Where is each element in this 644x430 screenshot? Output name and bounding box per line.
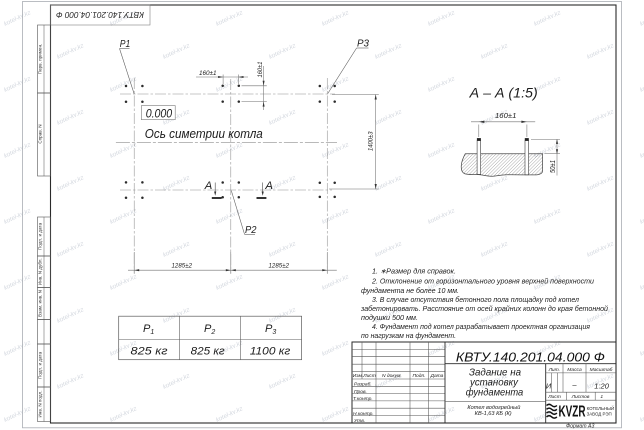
svg-text:КВТУ.140.201.04.000 Ф: КВТУ.140.201.04.000 Ф (55, 10, 144, 19)
svg-text:Лист: Лист (547, 394, 561, 400)
svg-text:забетонировать. Расстояние от: забетонировать. Расстояние от осей крайн… (360, 304, 608, 313)
svg-text:Пров.: Пров. (354, 389, 367, 395)
svg-text:КВ-1,63 КБ (К): КВ-1,63 КБ (К) (475, 411, 512, 417)
svg-text:ЗАВОД РЭП: ЗАВОД РЭП (587, 411, 612, 416)
svg-text:825 кг: 825 кг (191, 346, 226, 358)
svg-text:Формат А3: Формат А3 (566, 423, 594, 429)
svg-text:1: 1 (600, 394, 603, 400)
svg-text:1100 кг: 1100 кг (250, 346, 291, 358)
svg-text:1285±2: 1285±2 (172, 263, 193, 270)
svg-text:4. Фундамент под котел разраба: 4. Фундамент под котел разрабатывает про… (372, 322, 590, 331)
svg-text:фундамента: фундамента (466, 387, 524, 399)
svg-text:фундамента не более 10 мм.: фундамента не более 10 мм. (361, 286, 459, 295)
svg-text:А: А (264, 180, 273, 192)
svg-text:Подп.: Подп. (413, 373, 426, 379)
svg-text:Перв. примен.: Перв. примен. (38, 44, 43, 75)
svg-text:КВТУ.140.201.04.000 Ф: КВТУ.140.201.04.000 Ф (456, 350, 605, 365)
svg-text:Дата: Дата (430, 373, 444, 379)
svg-text:160±1: 160±1 (257, 61, 264, 77)
svg-text:160±1: 160±1 (495, 113, 517, 120)
svg-text:Лит.: Лит. (548, 367, 560, 373)
svg-text:Т.контр.: Т.контр. (353, 396, 373, 402)
svg-text:–: – (571, 381, 577, 390)
svg-text:Инв. N подл.: Инв. N подл. (38, 390, 43, 417)
svg-text:1285±2: 1285±2 (269, 263, 290, 270)
svg-text:825 кг: 825 кг (131, 346, 169, 358)
svg-text:Взам. инв. N: Взам. инв. N (38, 290, 43, 317)
svg-text:Ось симетрии котла: Ось симетрии котла (145, 126, 263, 141)
svg-text:N докум.: N докум. (382, 373, 402, 379)
svg-text:Н.контр.: Н.контр. (353, 411, 374, 417)
svg-text:3. В случае отсутствия бетонно: 3. В случае отсутствия бетонного пола пл… (372, 295, 579, 304)
svg-text:Масштаб: Масштаб (590, 367, 613, 373)
svg-text:160±1: 160±1 (199, 70, 217, 77)
svg-text:Р1: Р1 (120, 39, 131, 50)
svg-text:50±1: 50±1 (550, 160, 557, 173)
svg-text:Изм.Лист: Изм.Лист (353, 373, 376, 379)
svg-text:Утв.: Утв. (354, 418, 365, 424)
svg-text:Подп. и дата: Подп. и дата (38, 223, 43, 251)
svg-text:1400±3: 1400±3 (367, 131, 374, 151)
svg-text:подушки 500 мм.: подушки 500 мм. (361, 313, 418, 322)
svg-text:2. Отклонение от горизонтально: 2. Отклонение от горизонтального уровня … (371, 277, 594, 286)
svg-text:А – А (1:5): А – А (1:5) (469, 86, 538, 101)
svg-text:Листов: Листов (571, 394, 590, 400)
svg-text:0.000: 0.000 (146, 106, 173, 120)
svg-text:KVZR: KVZR (559, 404, 586, 421)
svg-text:КОТЕЛЬНЫЙ: КОТЕЛЬНЫЙ (587, 406, 615, 411)
svg-text:Разраб.: Разраб. (354, 382, 372, 388)
svg-text:Справ. N: Справ. N (38, 124, 43, 143)
svg-text:Подп. и дата: Подп. и дата (38, 352, 43, 380)
svg-text:Котел водогрейный: Котел водогрейный (467, 404, 520, 411)
svg-text:по нагрузкам на фундамент.: по нагрузкам на фундамент. (361, 331, 456, 340)
svg-text:1. ∗Размер для справок.: 1. ∗Размер для справок. (372, 267, 456, 276)
svg-text:А: А (204, 180, 213, 192)
svg-text:Инв. N дубл.: Инв. N дубл. (38, 258, 43, 285)
svg-text:Масса: Масса (567, 367, 582, 373)
svg-text:1:20: 1:20 (594, 382, 609, 391)
svg-text:И: И (546, 382, 552, 391)
